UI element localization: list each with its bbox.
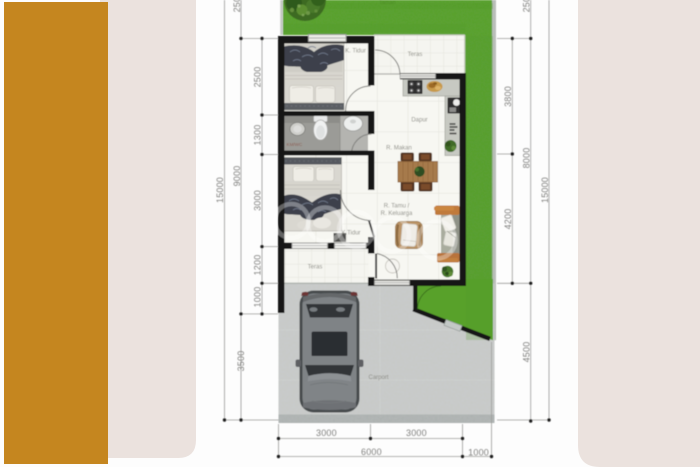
svg-text:1300: 1300 [252,125,262,146]
svg-text:K.Tidur: K.Tidur [341,231,360,237]
svg-text:3000: 3000 [252,190,262,211]
svg-text:15000: 15000 [215,177,225,203]
svg-text:15000: 15000 [540,177,550,203]
svg-text:9000: 9000 [232,166,242,187]
svg-text:2500: 2500 [521,0,531,12]
svg-text:R. Makan: R. Makan [386,146,412,152]
svg-text:Carport: Carport [368,375,388,381]
svg-text:2500: 2500 [232,0,242,12]
svg-text:6000: 6000 [361,447,382,457]
svg-text:2500: 2500 [252,67,262,88]
svg-text:8000: 8000 [521,148,531,169]
svg-text:1200: 1200 [252,255,262,276]
svg-text:Teras: Teras [408,52,423,58]
svg-text:1000: 1000 [468,447,489,457]
svg-text:3800: 3800 [503,86,513,107]
svg-text:Teras: Teras [308,265,323,271]
svg-text:3000: 3000 [406,428,427,438]
svg-text:K. Tidur: K. Tidur [345,49,366,55]
svg-text:KM/WC: KM/WC [287,142,304,147]
svg-text:3000: 3000 [316,428,337,438]
svg-text:Taman: Taman [379,0,396,6]
svg-text:4200: 4200 [503,209,513,230]
svg-text:Dapur: Dapur [411,118,427,124]
svg-text:R. Tamu /: R. Tamu / [384,204,410,210]
svg-text:4500: 4500 [521,342,531,363]
svg-text:1000: 1000 [252,287,262,308]
svg-text:3500: 3500 [236,351,246,372]
